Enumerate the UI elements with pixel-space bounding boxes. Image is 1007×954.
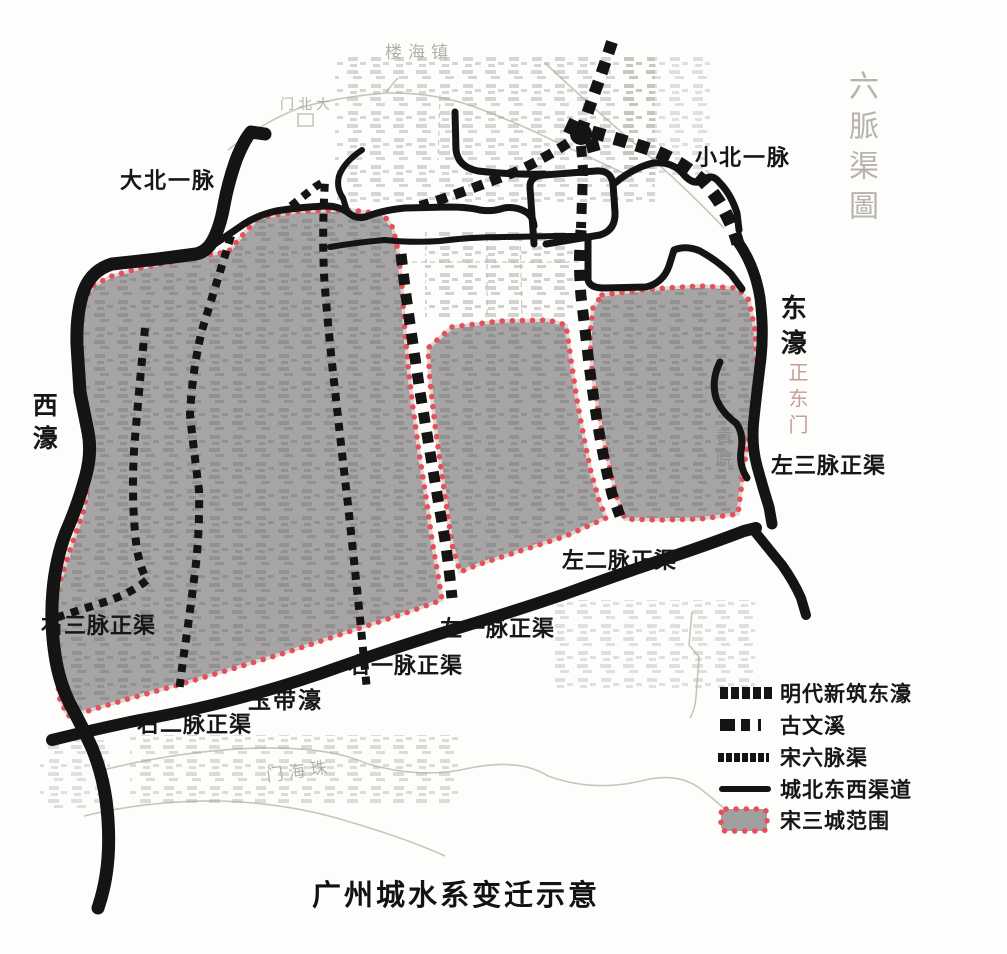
- label-left-third-vein: 左三脉正渠: [771, 455, 886, 478]
- label-six-vein-map-title: 六脈渠圖: [838, 70, 882, 230]
- faint-coastline-lower: [84, 801, 445, 856]
- map-title: 广州城水系变迁示意: [312, 872, 600, 914]
- label-left-first-vein: 左一脉正渠: [440, 618, 555, 641]
- east-moat-south-arm: [752, 528, 806, 615]
- legend-item-song-six-veins: 宋六脉渠: [716, 742, 868, 772]
- label-north-gate: 门北大: [280, 94, 334, 114]
- label-right-first-vein: 右一脉正渠: [348, 655, 463, 678]
- legend-marker-fine-dashed: [716, 745, 774, 769]
- label-yudai-moat: 玉带濠: [248, 689, 323, 713]
- label-west-moat: 西濠: [30, 392, 56, 458]
- legend-marker-bold-dashed: [716, 681, 774, 705]
- legend-item-label: 城北东西渠道: [780, 774, 912, 804]
- legend-item-ming-east-moat: 明代新筑东濠: [716, 678, 912, 708]
- legend-item-label: 宋六脉渠: [780, 742, 868, 772]
- label-dabei-vein: 大北一脉: [120, 170, 216, 193]
- legend-item-label: 古文溪: [780, 710, 846, 740]
- legend-item-label: 宋三城范围: [780, 805, 890, 835]
- legend-item-north-channels: 城北东西渠道: [716, 774, 912, 804]
- northeast-corner-arm: [588, 237, 742, 289]
- label-east-gate: 正东门: [783, 362, 812, 440]
- legend-item-song-city-extent: 宋三城范围: [714, 802, 890, 838]
- legend-item-ancient-wenxi: 古文溪: [716, 710, 846, 740]
- legend-marker-mixed-dashed: [716, 713, 774, 737]
- label-examination-hall: 貢院: [710, 428, 735, 472]
- legend-marker-solid-line: [716, 777, 774, 801]
- label-xiaobei-vein: 小北一脉: [695, 147, 791, 170]
- legend-marker-gray-red-dotted: [714, 802, 774, 838]
- legend-item-label: 明代新筑东濠: [780, 678, 912, 708]
- label-right-third-vein: 右三脉正渠: [41, 615, 156, 638]
- west-area-texture: [53, 210, 442, 716]
- label-left-second-vein: 左二脉正渠: [562, 550, 677, 573]
- middle-area-texture: [428, 320, 606, 572]
- label-east-moat: 东濠: [777, 294, 804, 364]
- historic-water-map: 大北一脉 小北一脉 西濠 东濠 左三脉正渠 左二脉正渠 左一脉正渠 右一脉正渠 …: [0, 0, 1007, 954]
- faint-gate-square: [298, 114, 313, 126]
- label-zhenhai-tower: 楼海镇: [385, 38, 454, 63]
- label-right-second-vein: 右二脉正渠: [137, 714, 252, 737]
